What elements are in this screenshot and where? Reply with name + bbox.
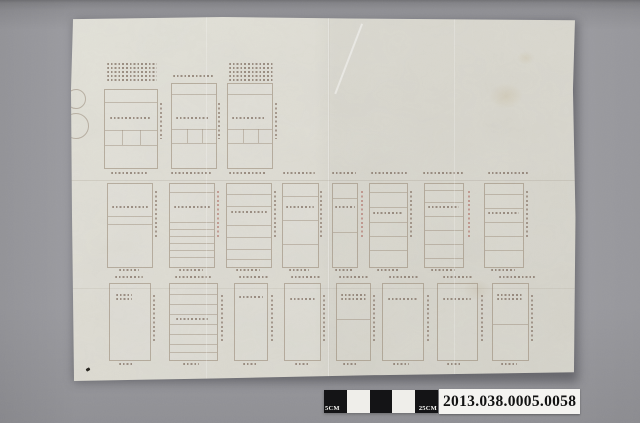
script-text <box>295 363 309 365</box>
script-text <box>443 298 471 300</box>
form-table <box>227 83 273 169</box>
script-text <box>488 212 519 214</box>
script-text <box>229 172 267 174</box>
script-text <box>290 298 316 300</box>
script-text <box>116 294 132 300</box>
scale-label-25cm: 25CM <box>419 405 437 412</box>
script-text <box>119 363 133 365</box>
scale-segment-black <box>370 390 393 413</box>
vertical-annotation <box>153 295 155 341</box>
script-text <box>335 269 353 271</box>
script-text <box>291 276 321 278</box>
scale-segment-white <box>347 390 370 413</box>
form-table <box>104 89 158 169</box>
script-text <box>371 172 407 174</box>
script-text <box>112 206 148 208</box>
vertical-annotation <box>160 103 162 139</box>
script-text <box>501 363 517 365</box>
script-text <box>286 206 314 208</box>
script-text <box>231 211 267 213</box>
form-table <box>484 183 524 268</box>
vertical-annotation <box>373 295 375 341</box>
script-text <box>388 298 418 300</box>
script-text <box>335 206 355 208</box>
vertical-annotation <box>320 191 322 239</box>
scale-segment-black: 25CM <box>415 390 438 413</box>
script-text <box>289 269 309 271</box>
form-table <box>109 283 151 361</box>
scale-label-5cm: 5CM <box>325 405 340 412</box>
script-text <box>497 294 523 300</box>
script-text <box>343 363 357 365</box>
form-table <box>369 183 408 268</box>
script-text <box>341 294 366 300</box>
script-text <box>176 117 210 119</box>
script-text <box>174 206 210 208</box>
script-text <box>283 172 315 174</box>
script-text <box>239 296 263 298</box>
form-table <box>336 283 371 361</box>
vertical-annotation <box>427 295 429 341</box>
form-table <box>382 283 424 361</box>
script-text <box>243 363 257 365</box>
document-sheet <box>71 17 577 381</box>
form-table <box>234 283 268 361</box>
form-table <box>492 283 529 361</box>
form-table <box>226 183 272 268</box>
script-text <box>229 63 273 81</box>
script-text <box>423 172 463 174</box>
script-text <box>389 276 419 278</box>
form-table <box>107 183 153 268</box>
vertical-annotation <box>274 191 276 239</box>
ink-fleck <box>86 367 91 372</box>
form-table <box>437 283 478 361</box>
vertical-annotation <box>221 295 223 341</box>
script-text <box>428 206 459 208</box>
form-table <box>424 183 464 268</box>
script-text <box>488 172 528 174</box>
form-table <box>169 283 218 361</box>
script-text <box>111 172 147 174</box>
vertical-annotation <box>323 295 325 341</box>
vertical-annotation <box>155 191 157 239</box>
form-table <box>332 183 358 268</box>
script-text <box>332 172 356 174</box>
vertical-annotation <box>275 103 277 139</box>
accession-label: 2013.038.0005.0058 <box>439 389 580 414</box>
script-text <box>393 363 409 365</box>
sheet-drawings <box>71 17 577 381</box>
script-text <box>175 276 211 278</box>
accession-number: 2013.038.0005.0058 <box>443 393 576 411</box>
vertical-annotation <box>271 295 273 341</box>
form-table <box>282 183 319 268</box>
script-text <box>119 269 139 271</box>
vertical-annotation <box>531 295 533 341</box>
script-text <box>431 269 455 271</box>
script-text <box>239 276 269 278</box>
photo-backdrop: 5CM25CM 2013.038.0005.0058 <box>0 0 640 423</box>
scale-segment-black: 5CM <box>324 390 347 413</box>
vertical-annotation <box>410 191 412 239</box>
vertical-annotation <box>481 295 483 341</box>
script-text <box>499 276 535 278</box>
vertical-annotation <box>218 103 220 139</box>
script-text <box>236 269 260 271</box>
sketch-circle <box>63 113 89 139</box>
form-table <box>284 283 321 361</box>
script-text <box>179 269 203 271</box>
script-text <box>183 363 199 365</box>
vertical-annotation <box>217 191 219 239</box>
script-text <box>377 269 399 271</box>
script-text <box>339 276 369 278</box>
script-text <box>176 318 208 320</box>
vertical-annotation <box>468 191 470 239</box>
script-text <box>110 117 150 119</box>
scale-segment-white <box>392 390 415 413</box>
script-text <box>232 117 266 119</box>
script-text <box>107 63 157 81</box>
script-text <box>443 276 473 278</box>
script-text <box>447 363 461 365</box>
sketch-circle <box>66 89 86 109</box>
script-text <box>115 276 143 278</box>
script-text <box>171 172 211 174</box>
vertical-annotation <box>526 191 528 239</box>
script-text <box>373 212 403 214</box>
script-text <box>491 269 515 271</box>
form-table <box>169 183 215 268</box>
script-text <box>173 75 213 77</box>
vertical-annotation <box>361 191 363 239</box>
form-table <box>171 83 217 169</box>
scale-bar: 5CM25CM <box>324 390 438 413</box>
